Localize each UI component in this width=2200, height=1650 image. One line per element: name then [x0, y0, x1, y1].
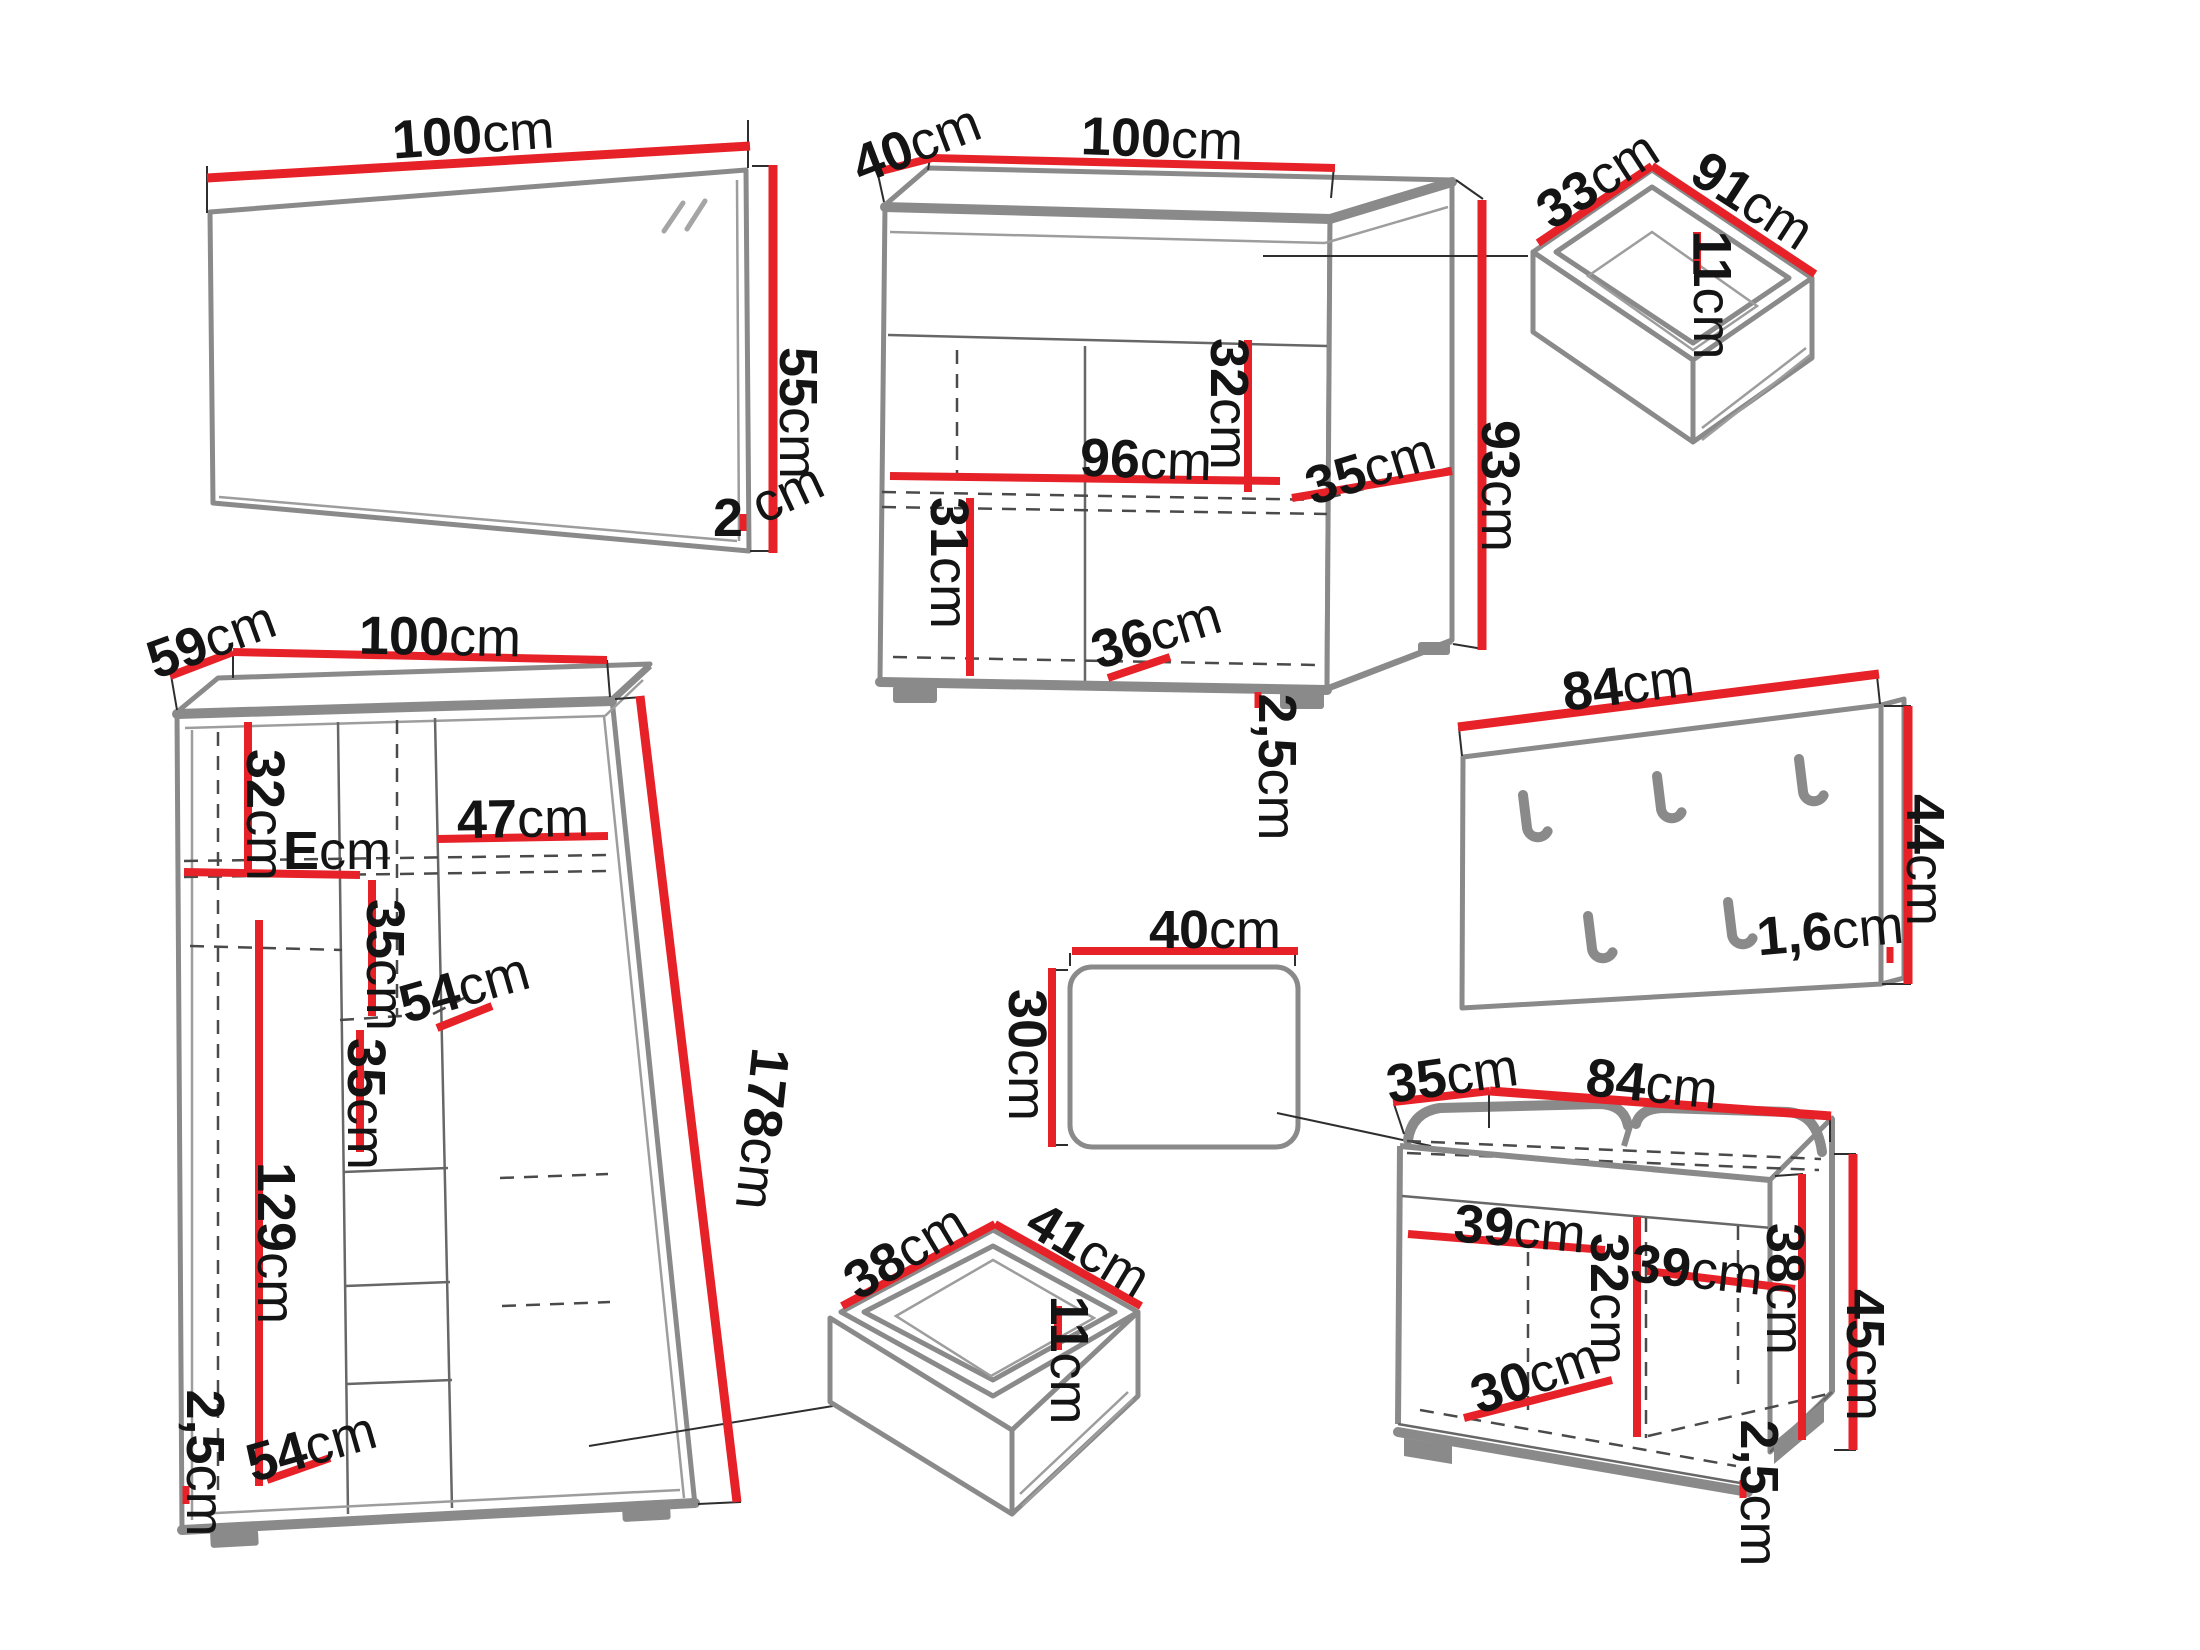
dim-coat-rack-height: 44cm [1895, 794, 1955, 926]
coat-rack-panel [1462, 705, 1881, 1008]
dim-coat-rack-thickness: 1,6cm [1754, 895, 1906, 968]
bench-cushion-left [1408, 1104, 1628, 1140]
dim-wardrobe-plinth: 2,5cm [175, 1389, 235, 1536]
dim-stool-width: 40cm [1149, 900, 1281, 960]
dim-bench-height: 45cm [1835, 1289, 1895, 1421]
dim-coat-rack-width: 84cm [1559, 647, 1697, 723]
dim-sideboard-inner-width: 96cm [1079, 428, 1213, 493]
dim-mirror-width: 100cm [390, 99, 556, 170]
dim-bench-39l: 39cm [1452, 1193, 1589, 1264]
dim-sideboard-plinth: 2,5cm [1247, 693, 1307, 840]
dim-drawer-top-height: 11cm [1682, 230, 1742, 359]
furniture-dimensions-diagram: 100cm 55cm 2 cm [0, 0, 2200, 1650]
dim-bench-width: 84cm [1583, 1047, 1721, 1120]
dim-mirror-depth-value: 2 [713, 488, 743, 548]
stool-drawing: 40cm 30cm [997, 900, 1431, 1147]
dim-drawer-bottom-height: 11cm [1039, 1295, 1099, 1424]
bench-drawing: 35cm 84cm 39cm 39cm 32cm 38cm 45cm 30cm … [1383, 1037, 1895, 1566]
dim-sideboard-width: 100cm [1080, 106, 1244, 172]
dim-wardrobe-hanging-height: 129cm [246, 1162, 306, 1324]
dim-wardrobe-left-shelf: Ecm [283, 821, 391, 881]
dim-sideboard-lower-height: 31cm [919, 497, 979, 629]
dim-wardrobe-right-shelf: 47cm [456, 788, 589, 850]
dim-stool-depth: 30cm [997, 989, 1057, 1121]
drawer-top-drawing: 33cm 91cm 11cm [1526, 119, 1824, 442]
dim-wardrobe-width: 100cm [358, 606, 521, 669]
dim-wardrobe-shelf-gap-b: 35cm [336, 1038, 396, 1170]
coat-rack-drawing: 84cm 44cm 1,6cm [1458, 647, 1955, 1008]
dim-bench-38: 38cm [1755, 1223, 1815, 1355]
dim-sideboard-height: 93cm [1470, 420, 1530, 552]
dim-wardrobe-height: 178cm [724, 1045, 801, 1212]
dim-bench-plinth: 2,5cm [1729, 1419, 1789, 1566]
stool-seat [1070, 967, 1298, 1147]
wardrobe-drawing: 59cm 100cm 32cm Ecm 47cm 35cm 54cm 35cm … [139, 589, 833, 1548]
sideboard-drawing: 40cm 100cm 32cm 96cm 35cm 93cm 31cm 36cm… [844, 92, 1530, 840]
diagram-canvas: 100cm 55cm 2 cm [0, 0, 2200, 1650]
mirror-drawing: 100cm 55cm 2 cm [207, 99, 833, 553]
drawer-bottom-drawing: 38cm 41cm 11cm [830, 1190, 1161, 1514]
